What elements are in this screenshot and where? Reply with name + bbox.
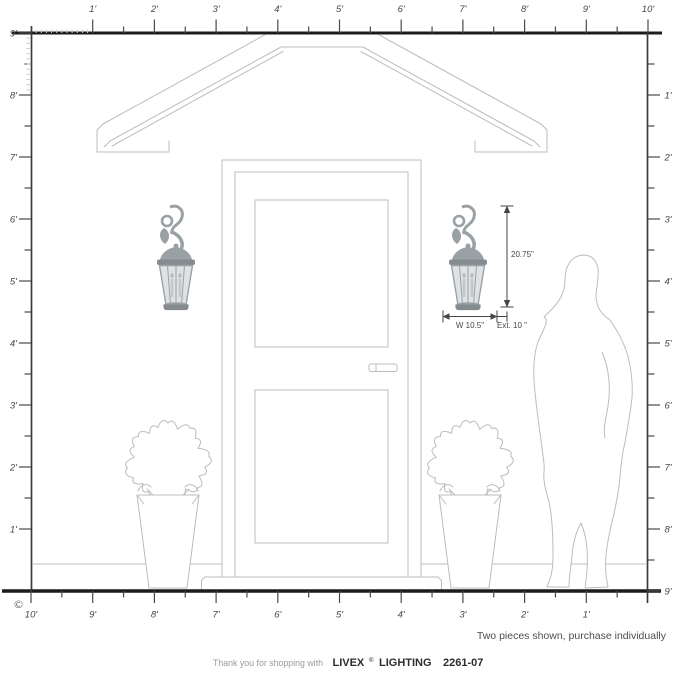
ruler-label: 3' xyxy=(459,610,467,621)
ruler-label: 1' xyxy=(583,610,591,621)
ruler-label: 4' xyxy=(10,339,18,350)
ruler-label: 7' xyxy=(213,610,221,621)
ruler-label: 1' xyxy=(89,4,97,15)
brand-suffix: LIGHTING xyxy=(379,657,432,669)
roof-edge-lower-right xyxy=(363,47,534,141)
ruler-label: 8' xyxy=(665,525,673,536)
ruler-label: 3' xyxy=(10,401,18,412)
footer-text: Thank you for shopping with LIVEX ® LIGH… xyxy=(213,649,483,670)
ruler-right: 1'2'3'4'5'6'7'8'9' xyxy=(648,64,673,598)
wall-lantern-right xyxy=(449,206,487,310)
ruler-label: 8' xyxy=(10,91,18,102)
ruler-label: 10' xyxy=(25,610,39,621)
ruler-label: 5' xyxy=(336,610,344,621)
ruler-label: 9' xyxy=(10,29,18,40)
ruler-label: 2' xyxy=(9,463,18,474)
ruler-label: 8' xyxy=(151,610,159,621)
door-step xyxy=(202,577,442,590)
dimension-height-label: 20.75" xyxy=(511,250,534,259)
ruler-label: 10' xyxy=(642,4,656,15)
note-text: Two pieces shown, purchase individually xyxy=(477,630,667,642)
ruler-label: 2' xyxy=(520,610,529,621)
potted-shrub-right xyxy=(428,420,514,588)
ruler-label: 3' xyxy=(213,4,221,15)
dimension-extension-label: Ext. 10 " xyxy=(497,321,527,330)
front-door xyxy=(222,160,421,577)
ruler-label: 5' xyxy=(336,4,344,15)
ruler-label: 7' xyxy=(10,153,18,164)
brand-text: LIVEX xyxy=(332,657,364,669)
ruler-label: 6' xyxy=(274,610,282,621)
portico-gable-roof xyxy=(97,21,547,152)
footer-prefix: Thank you for shopping with xyxy=(213,658,323,668)
roof-edge-lower-left xyxy=(110,47,281,141)
ruler-label: 9' xyxy=(89,610,97,621)
registered-mark: ® xyxy=(369,656,374,664)
copyright-symbol: © xyxy=(13,598,24,611)
ruler-label: 6' xyxy=(398,4,406,15)
ruler-top: 1'2'3'4'5'6'7'8'9'10' xyxy=(36,4,655,33)
roof-edge-lower-left-2 xyxy=(112,52,283,147)
wall-lantern-left xyxy=(157,206,195,310)
silhouette-outline xyxy=(534,255,632,588)
door-inner-frame xyxy=(235,172,408,577)
ruler-label: 3' xyxy=(665,215,673,226)
ruler-label: 9' xyxy=(583,4,591,15)
ruler-bottom: 10'9'8'7'6'5'4'3'2'1' xyxy=(25,591,617,621)
potted-shrub-left xyxy=(126,420,212,588)
ruler-label: 4' xyxy=(665,277,673,288)
diagram-canvas: 20.75" W 10.5" Ext. 10 " 1'2'3'4'5'6'7'8… xyxy=(0,0,679,674)
roof-edge-upper-left xyxy=(103,21,290,124)
roof-edge-upper-right xyxy=(354,21,541,124)
ruler-left: 9'8'7'6'5'4'3'2'1' xyxy=(9,29,31,536)
ruler-label: 8' xyxy=(521,4,529,15)
dimension-width-label: W 10.5" xyxy=(456,321,484,330)
product-scale-diagram: 20.75" W 10.5" Ext. 10 " 1'2'3'4'5'6'7'8… xyxy=(0,0,679,674)
ruler-label: 2' xyxy=(664,153,673,164)
ruler-label: 5' xyxy=(10,277,18,288)
ruler-label: 4' xyxy=(274,4,282,15)
roof-edge-lower-right-2 xyxy=(361,52,532,147)
ruler-label: 7' xyxy=(665,463,673,474)
ruler-label: 6' xyxy=(665,401,673,412)
model-number: 2261-07 xyxy=(443,657,483,669)
ruler-label: 5' xyxy=(665,339,673,350)
ruler-label: 2' xyxy=(150,4,159,15)
ruler-label: 1' xyxy=(10,525,18,536)
ruler-label: 9' xyxy=(665,587,673,598)
female-silhouette xyxy=(534,255,632,588)
ruler-label: 6' xyxy=(10,215,18,226)
ruler-label: 1' xyxy=(665,91,673,102)
ruler-label: 7' xyxy=(459,4,467,15)
scene: 20.75" W 10.5" Ext. 10 " xyxy=(33,21,646,590)
ruler-label: 4' xyxy=(398,610,406,621)
